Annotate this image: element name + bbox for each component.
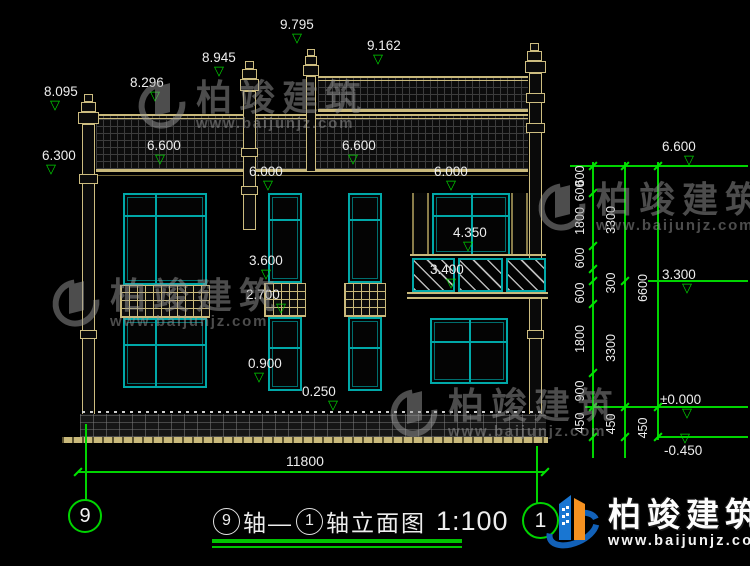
level-marker-8296: 8.296 [128,75,164,101]
level-marker-6000-right: 6.000 [432,164,468,190]
title-text: 轴立面图 [326,504,426,538]
title-text: 轴— [243,504,293,538]
dim-label: 450 [604,414,618,435]
left-post-band [80,330,97,339]
window-left-upper [123,193,207,285]
dim-label: 450 [636,418,650,439]
window-left-lower [123,318,207,388]
level-marker-2700: 2.700 [244,287,286,313]
title-scale: 1:100 [436,506,509,537]
level-marker-8945: 8.945 [200,50,236,76]
strip-window-2-lower [348,317,382,391]
axis-bubble-9: 9 [68,499,102,533]
level-triangle-icon [446,277,464,288]
brand-name: 柏竣建筑 [608,497,750,533]
level-marker-4350: 4.350 [451,225,487,251]
dim-line-vertical [624,162,626,458]
level-line-minus0450 [657,436,748,438]
wall-pier [511,193,528,254]
level-triangle-icon [463,240,487,251]
ground-line [62,437,548,443]
level-marker-6000-left: 6.000 [247,164,283,190]
level-marker-6600-mid: 6.600 [340,138,376,164]
level-marker-0250: 0.250 [300,384,338,410]
window-mullion [432,341,506,343]
upper-roof-tile-band [318,76,528,112]
title-axis-circle-start: 9 [213,508,240,535]
dim-label: 450 [573,413,587,434]
level-triangle-icon [292,32,314,43]
level-triangle-icon [155,153,181,164]
level-text: -0.450 [662,443,702,458]
dim-label: 1800 [573,207,587,235]
level-line-3300 [648,280,748,282]
level-triangle-icon [682,407,701,418]
level-triangle-icon [684,154,696,165]
right-post-collar [525,61,546,73]
right-post-band [527,330,544,339]
window-mullion [125,344,205,346]
watermark: 柏竣建筑 www.baijunjz.com [536,180,750,234]
dim-tick [540,467,549,476]
level-marker-3400: 3.400 [428,262,464,288]
level-triangle-icon [328,399,338,410]
left-post-collar [78,112,99,124]
window-mullion [155,195,157,283]
strip-window-2-upper [348,193,382,283]
level-marker-9795: 9.795 [278,17,314,43]
brand-url: www.baijunjz.com [608,533,750,550]
cad-elevation-drawing: 8.095 8.296 8.945 9.795 9.162 6.300 6.60… [0,0,750,566]
dim-label: 6600 [636,274,650,302]
dim-line-vertical [592,162,594,458]
overall-width-dim: 11800 [286,453,324,469]
level-triangle-icon [682,282,696,293]
dim-label: 600 [573,283,587,304]
window-mullion [155,320,157,386]
drawing-title: 9 轴— 1 轴立面图 1:100 [210,504,509,538]
level-marker-9162: 9.162 [365,38,401,64]
axis-line-right [536,446,538,503]
balcony-glass-panel [506,258,546,292]
brand-logo-icon [544,484,602,563]
axis-line-left [85,424,87,500]
dim-line-vertical [657,162,659,440]
brick-plinth-band [80,414,546,437]
dim-label: 900 [573,381,587,402]
dim-label: 3300 [604,206,618,234]
right-post-finial-cap [530,43,539,51]
window-mullion [125,215,205,217]
level-marker-0900: 0.900 [246,356,282,382]
level-triangle-icon [214,65,236,76]
mid-left-post-finial-cap [245,61,254,69]
mid-left-post-shaft [243,91,256,230]
title-underline-thin [212,546,462,548]
dim-label: 300 [604,273,618,294]
mid-left-post-band [241,148,258,157]
window-mullion [469,320,471,382]
level-marker-6600-left: 6.600 [145,138,181,164]
chimney-finial-cap [307,49,315,56]
level-marker-6600-right: 6.600 [660,139,696,165]
level-triangle-icon [46,163,76,174]
level-triangle-icon [348,153,376,164]
level-line-0000 [585,406,748,408]
balcony-slab [407,292,548,299]
left-post-band [79,174,98,184]
left-post-finial-cap [84,94,93,102]
balcony-rail-top [410,254,546,256]
mid-left-post-collar [240,79,259,91]
right-post-finial-knob [527,51,542,61]
dim-label: 1800 [573,325,587,353]
brand-footer: 柏竣建筑 www.baijunjz.com [544,484,750,563]
dim-label: 600 [573,248,587,269]
lattice-band-strip-2 [344,283,386,317]
window-mullion [270,347,300,349]
window-mullion [434,215,508,217]
chimney-shaft [306,76,316,172]
dim-label: 3300 [604,334,618,362]
level-marker-3600: 3.600 [247,253,283,279]
window-mullion [350,219,380,221]
right-post-band [526,123,545,133]
level-marker-0000-right: ±0.000 [658,392,701,418]
wall-pier [412,193,429,254]
watermark-url: www.baijunjz.com [596,218,750,234]
level-marker-8095: 8.095 [42,84,78,110]
level-triangle-icon [263,179,283,190]
level-triangle-icon [150,90,164,101]
lattice-band-left [120,285,210,318]
level-triangle-icon [446,179,468,190]
watermark-brand: 柏竣建筑 [596,181,750,218]
left-post-finial-knob [81,102,96,112]
level-triangle-icon [373,53,401,64]
axis-bubble-label: 9 [79,505,90,528]
level-triangle-icon [254,371,282,382]
title-axis-circle-end: 1 [296,508,323,535]
level-marker-6300: 6.300 [40,148,76,174]
chimney-finial-knob [305,56,317,65]
level-text: ±0.000 [658,392,701,407]
right-post-band [526,93,545,103]
dim-label: 600 [573,181,587,202]
level-triangle-icon [50,99,78,110]
window-mullion [350,347,380,349]
window-mullion [270,219,300,221]
level-triangle-icon [261,268,283,279]
mid-left-post-finial-knob [242,69,257,79]
title-underline-thick [212,539,462,543]
bottom-dim-line [78,471,545,473]
plinth-top-dashes [82,411,544,413]
left-post-shaft [82,124,95,437]
chimney-collar [303,65,319,76]
level-triangle-icon [276,302,286,313]
window-right-lower [430,318,508,384]
balcony-glass-panel [458,258,503,292]
